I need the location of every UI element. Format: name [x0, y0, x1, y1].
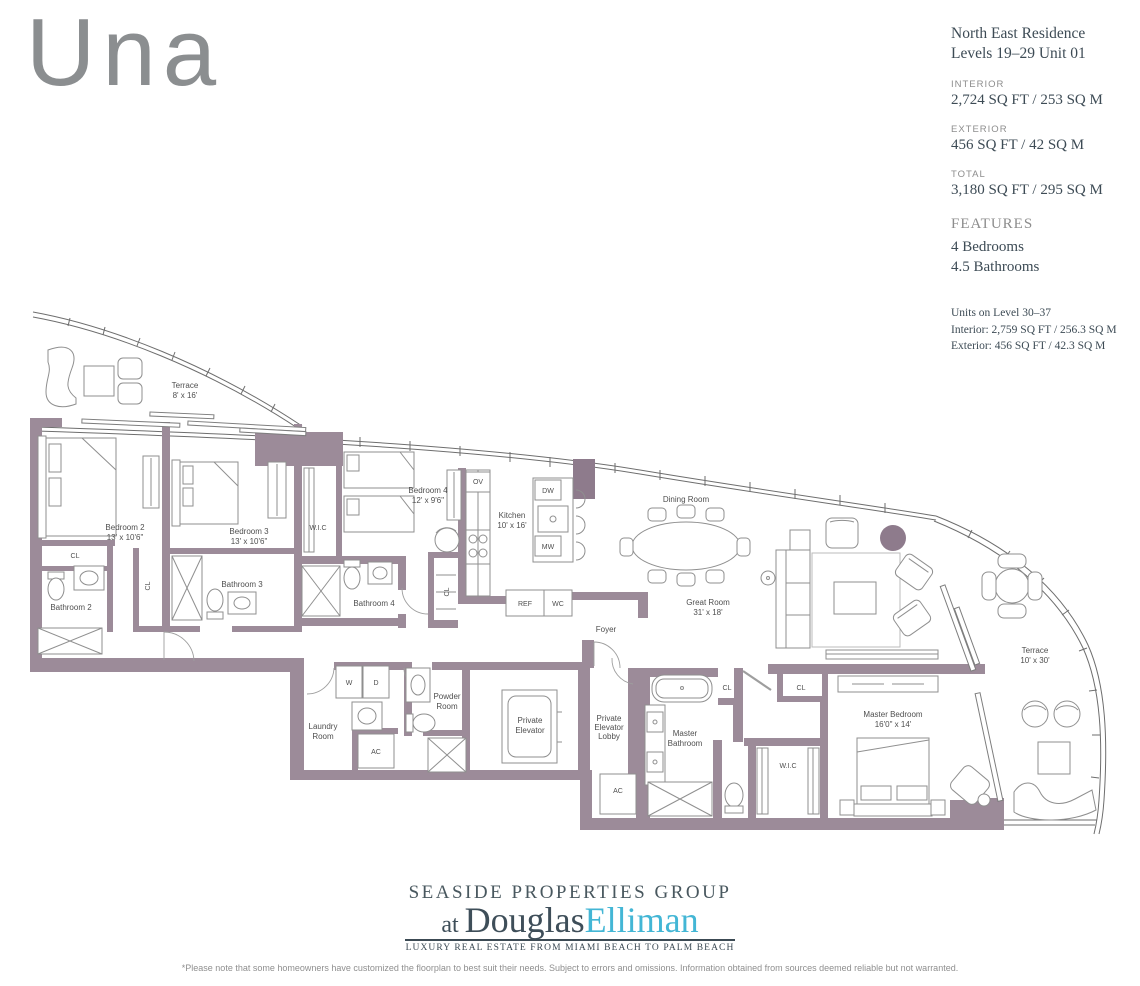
label-bedroom-3: Bedroom 3 — [229, 527, 269, 536]
label-private-elevator-lobby: Private — [597, 714, 622, 723]
label-master-bedroom: Master Bedroom — [863, 710, 922, 719]
side-table — [790, 530, 810, 550]
svg-text:Room: Room — [436, 702, 458, 711]
brokerage-logo: SEASIDE PROPERTIES GROUP at DouglasEllim… — [0, 882, 1140, 953]
nightstand — [931, 800, 945, 815]
douglas-text: Douglas — [465, 900, 585, 940]
label-cl-1: CL — [71, 553, 80, 560]
label-kitchen: Kitchen — [499, 511, 526, 520]
stool — [576, 542, 585, 560]
bed-headboard — [38, 436, 46, 538]
terrace-curve-left — [33, 312, 302, 429]
svg-text:10' x 16': 10' x 16' — [497, 521, 527, 530]
side-table — [978, 794, 990, 806]
dining-chair — [737, 538, 750, 556]
sink — [647, 712, 663, 732]
toilet — [207, 589, 223, 611]
dining-chair — [706, 508, 724, 521]
dining-chair — [677, 573, 695, 586]
label-bathroom-4: Bathroom 4 — [353, 599, 395, 608]
svg-text:13' x 10'6": 13' x 10'6" — [107, 533, 144, 542]
dining-chair — [620, 538, 633, 556]
label-washer: W — [346, 680, 353, 687]
label-bedroom-4: Bedroom 4 — [408, 486, 448, 495]
svg-text:8' x 16': 8' x 16' — [173, 391, 198, 400]
island-sink — [538, 506, 568, 532]
svg-text:13' x 10'6": 13' x 10'6" — [231, 537, 268, 546]
dining-chair — [648, 570, 666, 583]
sink — [368, 562, 392, 584]
label-wc: WC — [552, 601, 564, 608]
svg-text:12' x 9'6": 12' x 9'6" — [412, 496, 444, 505]
pouf — [1054, 701, 1080, 727]
label-cl-3: CL — [444, 587, 451, 596]
svg-text:Bathroom: Bathroom — [668, 739, 703, 748]
terrace-chair — [982, 572, 996, 600]
label-dining-room: Dining Room — [663, 495, 710, 504]
dining-chair — [706, 570, 724, 583]
armchair — [826, 518, 858, 548]
label-bedroom-2: Bedroom 2 — [105, 523, 145, 532]
label-mw: MW — [542, 544, 555, 551]
label-powder-room: Powder — [433, 692, 460, 701]
douglas-elliman-wordmark: at DouglasElliman — [0, 902, 1140, 938]
label-cl-5: CL — [797, 685, 806, 692]
nightstand — [840, 800, 854, 815]
floorplan: Terrace 8' x 16' Bedroom 2 13' x 10'6" B… — [0, 0, 1140, 986]
label-master-bathroom: Master — [673, 729, 698, 738]
svg-text:31' x 18': 31' x 18' — [693, 608, 723, 617]
chaise-lounge — [1014, 783, 1096, 820]
label-wic-1: W.I.C — [309, 525, 326, 532]
sofa — [776, 550, 810, 648]
label-wic-2: W.I.C — [779, 763, 796, 770]
chair — [435, 528, 459, 552]
label-ac-1: AC — [371, 749, 381, 756]
label-cl-4: CL — [723, 685, 732, 692]
label-bathroom-2: Bathroom 2 — [50, 603, 92, 612]
terrace-chair — [998, 554, 1026, 568]
terrace-chair — [118, 358, 142, 379]
structural-column — [880, 525, 906, 551]
label-terrace-left: Terrace — [172, 381, 199, 390]
terrace-chair — [1028, 572, 1042, 600]
toilet — [406, 714, 413, 732]
chaise-lounge — [46, 347, 76, 407]
svg-text:Elevator: Elevator — [594, 723, 624, 732]
sink — [228, 592, 256, 614]
elliman-text: Elliman — [585, 900, 699, 940]
bed-headboard — [854, 804, 932, 816]
terrace-table — [1038, 742, 1070, 774]
disclaimer-text: *Please note that some homeowners have c… — [0, 963, 1140, 973]
terrace-chair — [118, 383, 142, 404]
label-foyer: Foyer — [596, 625, 617, 634]
svg-text:16'0" x 14': 16'0" x 14' — [875, 720, 912, 729]
label-ref: REF — [518, 601, 532, 608]
coffee-table — [834, 582, 876, 614]
sink — [74, 566, 104, 590]
label-bathroom-3: Bathroom 3 — [221, 580, 263, 589]
pouf — [1022, 701, 1048, 727]
powder-sink — [406, 668, 430, 702]
toilet — [344, 560, 360, 567]
terrace-table — [84, 366, 114, 396]
dining-chair — [677, 505, 695, 518]
sink — [647, 752, 663, 772]
bed-headboard — [172, 460, 180, 526]
toilet — [725, 783, 743, 807]
dining-table — [632, 522, 740, 570]
terrace-table — [995, 569, 1029, 603]
label-dw: DW — [542, 488, 554, 495]
label-laundry-room: Laundry — [309, 722, 338, 731]
floor-lamp — [761, 571, 775, 585]
terrace-chair — [998, 604, 1026, 618]
label-ac-2: AC — [613, 788, 623, 795]
svg-text:Elevator: Elevator — [515, 726, 545, 735]
label-cl-2: CL — [145, 581, 152, 590]
svg-text:10' x 30': 10' x 30' — [1020, 656, 1050, 665]
dining-chair — [648, 508, 666, 521]
stool — [576, 516, 585, 534]
laundry-sink — [352, 702, 382, 730]
svg-text:Lobby: Lobby — [598, 732, 620, 741]
label-private-elevator: Private — [518, 716, 543, 725]
svg-text:Room: Room — [312, 732, 334, 741]
label-dryer: D — [373, 680, 378, 687]
label-terrace-right: Terrace — [1022, 646, 1049, 655]
brand-tagline: LUXURY REAL ESTATE FROM MIAMI BEACH TO P… — [0, 943, 1140, 953]
label-great-room: Great Room — [686, 598, 730, 607]
label-ov: OV — [473, 479, 483, 486]
